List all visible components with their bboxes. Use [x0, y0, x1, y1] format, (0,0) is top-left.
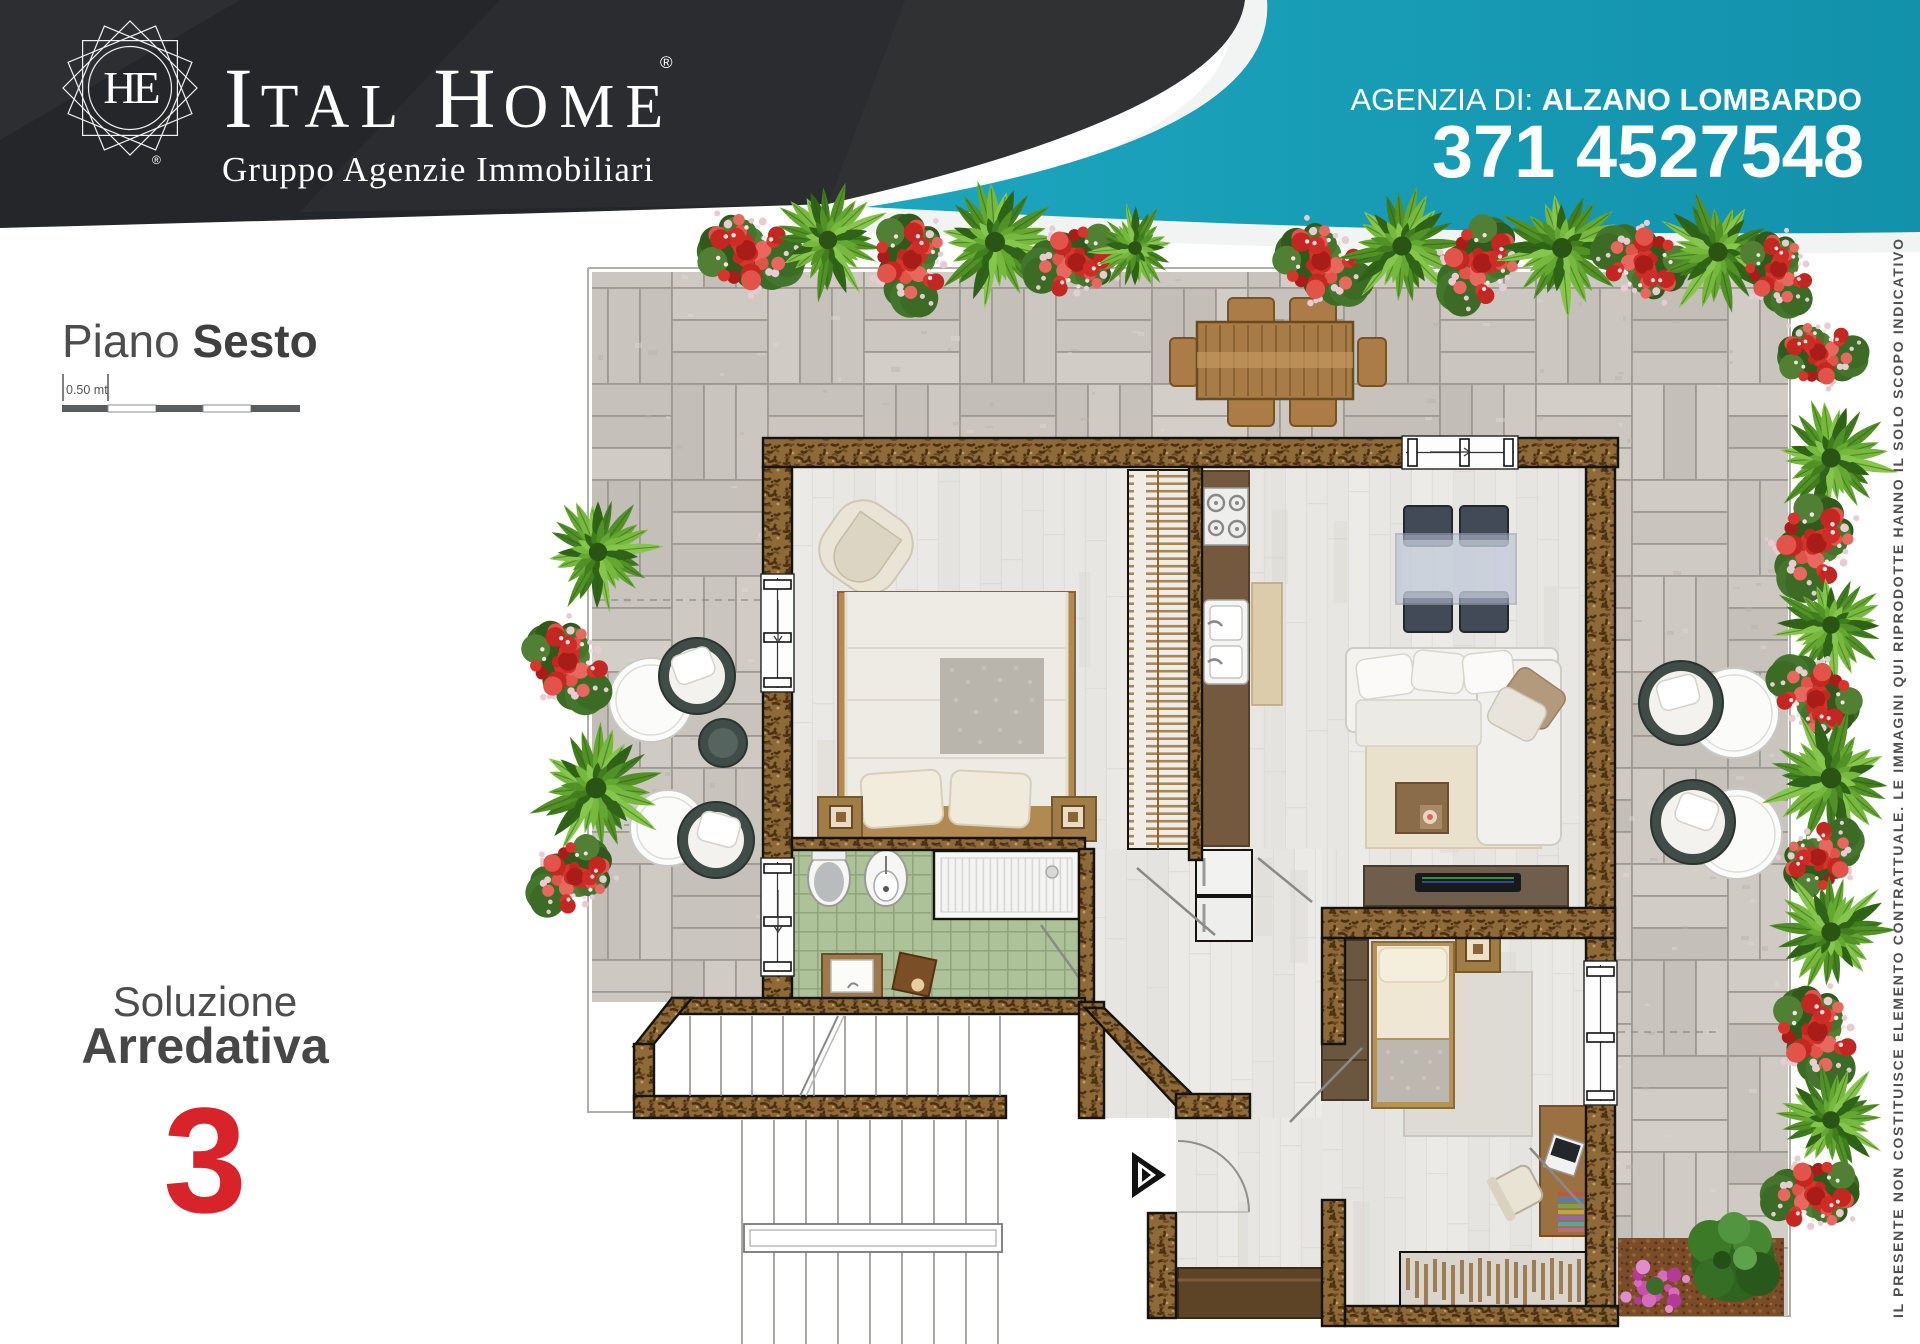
- svg-text:Piano Sesto: Piano Sesto: [62, 315, 318, 367]
- svg-text:Arredativa: Arredativa: [81, 1018, 330, 1074]
- svg-text:®: ®: [660, 53, 673, 72]
- svg-text:371 4527548: 371 4527548: [1432, 110, 1864, 193]
- svg-text:IL PRESENTE NON COSTITUISCE EL: IL PRESENTE NON COSTITUISCE ELEMENTO CON…: [1890, 237, 1906, 1318]
- svg-text:®: ®: [152, 153, 161, 167]
- svg-text:Gruppo Agenzie Immobiliari: Gruppo Agenzie Immobiliari: [222, 150, 654, 189]
- svg-text:0.50 mt: 0.50 mt: [66, 383, 108, 397]
- svg-text:3: 3: [163, 1076, 246, 1244]
- svg-text:HE: HE: [103, 62, 158, 113]
